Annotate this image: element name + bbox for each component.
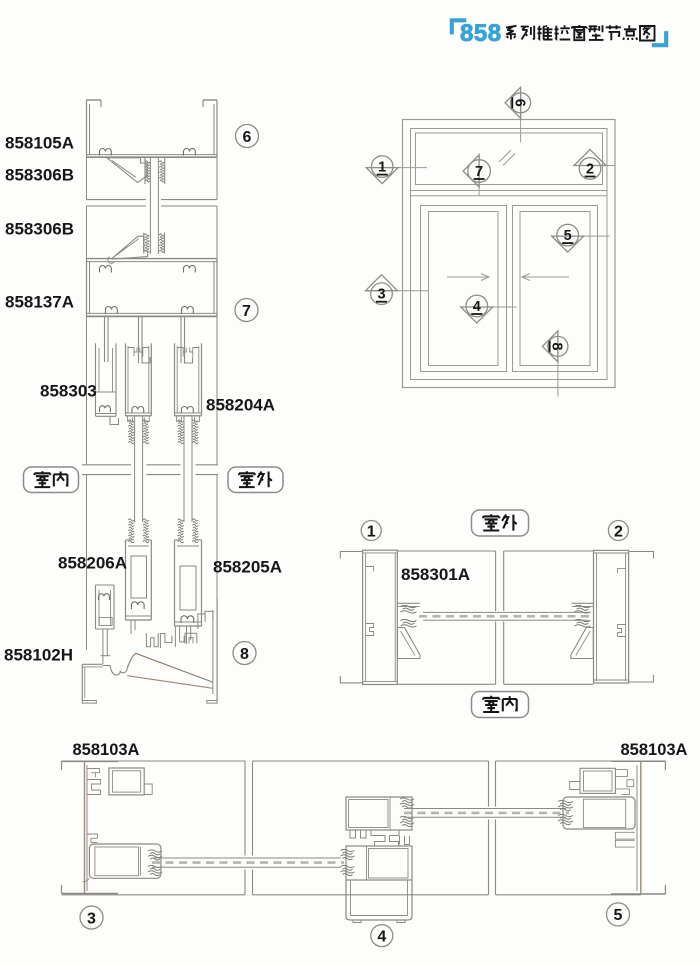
svg-text:858206A: 858206A <box>58 554 127 573</box>
svg-text:858306B: 858306B <box>5 220 74 239</box>
svg-text:3: 3 <box>377 287 385 303</box>
svg-text:858301A: 858301A <box>401 565 470 584</box>
svg-text:5: 5 <box>564 228 572 244</box>
svg-text:2: 2 <box>586 162 594 178</box>
svg-text:7: 7 <box>242 303 251 320</box>
svg-text:6: 6 <box>243 129 252 146</box>
svg-text:858306B: 858306B <box>5 166 74 185</box>
svg-text:8: 8 <box>549 342 565 350</box>
svg-text:4: 4 <box>377 928 386 945</box>
svg-text:858: 858 <box>460 20 502 47</box>
svg-text:858204A: 858204A <box>206 396 275 415</box>
svg-text:858205A: 858205A <box>213 558 282 577</box>
svg-text:1: 1 <box>378 160 386 176</box>
svg-text:8: 8 <box>240 646 249 663</box>
svg-text:858102H: 858102H <box>4 646 73 665</box>
svg-text:6: 6 <box>511 99 527 107</box>
svg-text:858303: 858303 <box>40 382 97 401</box>
svg-text:2: 2 <box>614 523 623 540</box>
svg-text:858105A: 858105A <box>5 134 74 153</box>
svg-text:1: 1 <box>367 523 376 540</box>
svg-text:7: 7 <box>475 164 483 180</box>
svg-text:858137A: 858137A <box>5 293 74 312</box>
svg-text:3: 3 <box>87 910 96 927</box>
svg-text:4: 4 <box>473 299 481 315</box>
svg-text:858103A: 858103A <box>621 741 688 759</box>
svg-text:5: 5 <box>614 907 623 924</box>
svg-text:858103A: 858103A <box>73 741 140 759</box>
